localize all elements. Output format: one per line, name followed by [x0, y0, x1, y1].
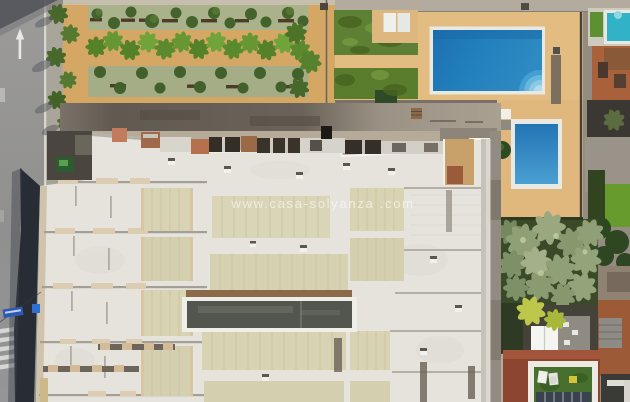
svg-text:www.casa-solyanza .com: www.casa-solyanza .com: [230, 196, 414, 211]
